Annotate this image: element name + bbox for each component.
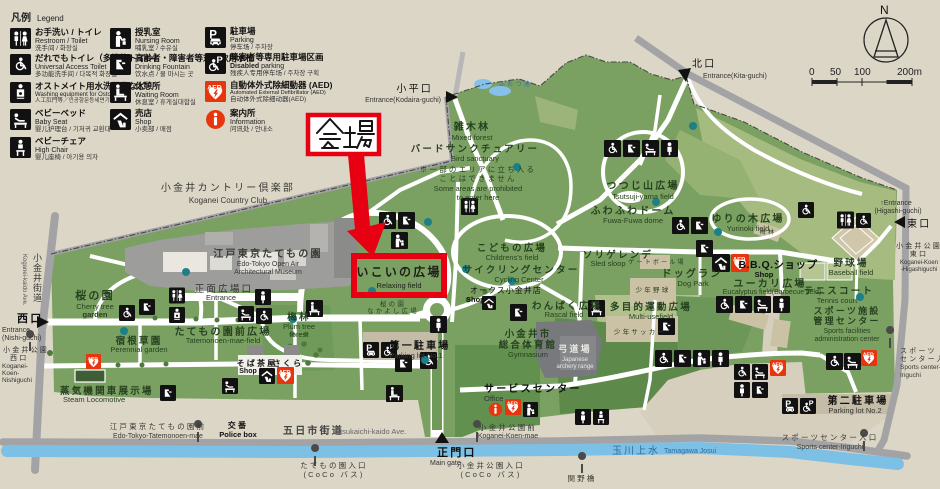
svg-text:Relaxing field: Relaxing field <box>376 281 421 290</box>
svg-text:Rascal field: Rascal field <box>545 310 584 319</box>
svg-text:Bird sanctuary: Bird sanctuary <box>451 154 499 163</box>
svg-text:西口: 西口 <box>10 354 28 362</box>
svg-text:Childrens's field: Childrens's field <box>486 253 539 262</box>
svg-text:Nishiguchi: Nishiguchi <box>2 377 32 384</box>
svg-text:(CoCo バス): (CoCo バス) <box>460 470 521 479</box>
svg-text:管理センター: 管理センター <box>813 315 880 326</box>
svg-text:(Higashi-guchi): (Higashi-guchi) <box>874 208 921 215</box>
svg-text:桜の園: 桜の園 <box>75 288 115 302</box>
svg-text:Perennial garden: Perennial garden <box>110 345 167 354</box>
svg-text:スポーツ: スポーツ <box>900 347 937 355</box>
svg-text:Some areas are prohibited: Some areas are prohibited <box>434 184 522 193</box>
svg-text:たてもの園入口: たてもの園入口 <box>300 461 368 470</box>
svg-text:小平口: 小平口 <box>396 83 433 95</box>
svg-text:garden: garden <box>82 310 107 319</box>
svg-text:小金井公園前: 小金井公園前 <box>479 422 537 432</box>
svg-text:東口: 東口 <box>910 249 928 258</box>
svg-text:小金井街道: 小金井街道 <box>32 253 42 303</box>
svg-text:B.B.Q.ショップ: B.B.Q.ショップ <box>738 258 817 271</box>
svg-text:Office: Office <box>484 394 503 403</box>
svg-text:スポーツセンター入口: スポーツセンター入口 <box>782 433 879 442</box>
svg-text:弓道場: 弓道場 <box>558 343 592 354</box>
svg-text:Police box: Police box <box>219 430 257 439</box>
svg-text:Itsukaichi-kaido Ave.: Itsukaichi-kaido Ave. <box>338 427 406 436</box>
svg-text:オークス小金井店: オークス小金井店 <box>470 285 542 295</box>
svg-text:ことはできません: ことはできません <box>439 174 516 183</box>
svg-text:ゲートボール場: ゲートボール場 <box>628 258 685 266</box>
svg-text:administration center: administration center <box>815 336 881 343</box>
svg-text:北口: 北口 <box>692 58 716 70</box>
svg-text:正門口: 正門口 <box>437 446 477 459</box>
svg-text:Sports center-Iriguchi: Sports center-Iriguchi <box>797 444 864 451</box>
svg-text:Entrance: Entrance <box>206 293 236 302</box>
svg-text:Fuwa-Fuwa dome: Fuwa-Fuwa dome <box>603 216 663 225</box>
svg-text:少年野球: 少年野球 <box>636 285 671 294</box>
svg-text:※一部のエリアに立ち入る: ※一部のエリアに立ち入る <box>420 164 536 174</box>
svg-text:(CoCo バス): (CoCo バス) <box>303 470 364 479</box>
svg-text:Sports facilities: Sports facilities <box>823 328 871 335</box>
svg-text:小金井市: 小金井市 <box>504 328 552 340</box>
svg-text:五日市街道: 五日市街道 <box>283 424 344 437</box>
svg-text:小金井公園: 小金井公園 <box>3 345 49 354</box>
svg-text:Shop: Shop <box>466 295 485 304</box>
svg-text:梅林: 梅林 <box>760 228 776 236</box>
svg-text:Koganei-Koen: Koganei-Koen <box>900 260 938 266</box>
svg-text:Tennis court: Tennis court <box>817 296 858 305</box>
svg-text:Parking lot No.2: Parking lot No.2 <box>828 406 881 415</box>
svg-text:to enter here: to enter here <box>457 193 500 202</box>
svg-text:Main gate: Main gate <box>430 460 461 467</box>
svg-text:なかよし広場: なかよし広場 <box>367 306 419 315</box>
svg-text:雑木林: 雑木林 <box>453 120 491 133</box>
svg-text:Tatemonoen-mae-field: Tatemonoen-mae-field <box>186 336 261 345</box>
svg-text:Iriguchi: Iriguchi <box>900 372 921 379</box>
svg-text:(Nishi-guchi): (Nishi-guchi) <box>2 335 41 342</box>
svg-text:Multi-usefield: Multi-usefield <box>629 312 673 321</box>
svg-text:桜の園: 桜の園 <box>380 299 406 308</box>
svg-text:さくら: さくら <box>273 359 304 368</box>
svg-text:関野橋: 関野橋 <box>567 473 596 483</box>
svg-text:archery range: archery range <box>556 364 594 370</box>
svg-text:Tamagawa Josui: Tamagawa Josui <box>664 448 717 455</box>
svg-text:Mixed forest: Mixed forest <box>452 133 494 142</box>
svg-text:江戸東京たてもの園: 江戸東京たてもの園 <box>213 247 322 260</box>
svg-text:江戸東京たてもの園前: 江戸東京たてもの園前 <box>110 421 207 431</box>
svg-text:Entrance(Kodaira-guchi): Entrance(Kodaira-guchi) <box>365 97 441 104</box>
svg-text:Entrance: Entrance <box>2 327 30 334</box>
svg-text:Tsutsuji-yama field: Tsutsuji-yama field <box>612 192 674 201</box>
svg-text:Sled sloop: Sled sloop <box>590 259 625 268</box>
svg-text:小金井公園入口: 小金井公園入口 <box>457 460 525 470</box>
svg-text:東口: 東口 <box>907 217 931 230</box>
svg-text:-Higashiguchi: -Higashiguchi <box>901 267 937 273</box>
svg-text:forest: forest <box>290 330 310 339</box>
svg-text:スポーツ施設: スポーツ施設 <box>813 305 880 316</box>
svg-text:Koen-: Koen- <box>2 370 19 377</box>
svg-text:Shop: Shop <box>239 368 257 375</box>
svg-text:Koganei-kaido Ave.: Koganei-kaido Ave. <box>21 254 27 306</box>
svg-text:交番: 交番 <box>228 420 248 430</box>
svg-text:Koganei-: Koganei- <box>2 363 28 370</box>
svg-text:Edo-Tokyo-Tatemonoen-mae: Edo-Tokyo-Tatemonoen-mae <box>113 433 203 440</box>
svg-text:少年サッカー: 少年サッカー <box>614 327 666 336</box>
svg-text:Sports center-: Sports center- <box>900 364 940 371</box>
svg-text:そば茶屋: そば茶屋 <box>237 358 278 368</box>
svg-text:Parking lot No.1: Parking lot No.1 <box>389 351 442 360</box>
svg-text:西口: 西口 <box>17 312 43 325</box>
svg-text:Dog Park: Dog Park <box>677 279 709 288</box>
svg-text:いこいの広場: いこいの広場 <box>356 264 441 279</box>
svg-text:センター入口: センター入口 <box>900 354 940 363</box>
svg-text:↑Entrance: ↑Entrance <box>880 200 912 207</box>
svg-text:Japanese: Japanese <box>562 357 589 363</box>
svg-text:Koganei-Koen-mae: Koganei-Koen-mae <box>478 433 538 440</box>
svg-text:Entrance(Kita-guchi): Entrance(Kita-guchi) <box>703 73 767 80</box>
svg-text:小金井公園: 小金井公園 <box>896 241 940 250</box>
svg-text:Architectural Museum: Architectural Museum <box>234 269 302 276</box>
svg-text:Koganei Country Club: Koganei Country Club <box>189 196 268 205</box>
svg-text:Shop: Shop <box>755 270 774 279</box>
svg-text:玉川上水: 玉川上水 <box>612 445 660 457</box>
svg-text:Baseball field: Baseball field <box>829 268 874 277</box>
svg-text:つつじ山広場: つつじ山広場 <box>606 179 679 192</box>
svg-text:小金井カントリー倶楽部: 小金井カントリー倶楽部 <box>161 181 295 194</box>
svg-text:ふたつ池: ふたつ池 <box>499 80 532 88</box>
svg-text:Gymnasium: Gymnasium <box>508 350 548 359</box>
svg-text:Steam Locomotive: Steam Locomotive <box>63 395 125 404</box>
svg-text:Edo-Tokyo Open Air: Edo-Tokyo Open Air <box>237 261 300 268</box>
svg-text:Cycling Center: Cycling Center <box>494 275 544 284</box>
